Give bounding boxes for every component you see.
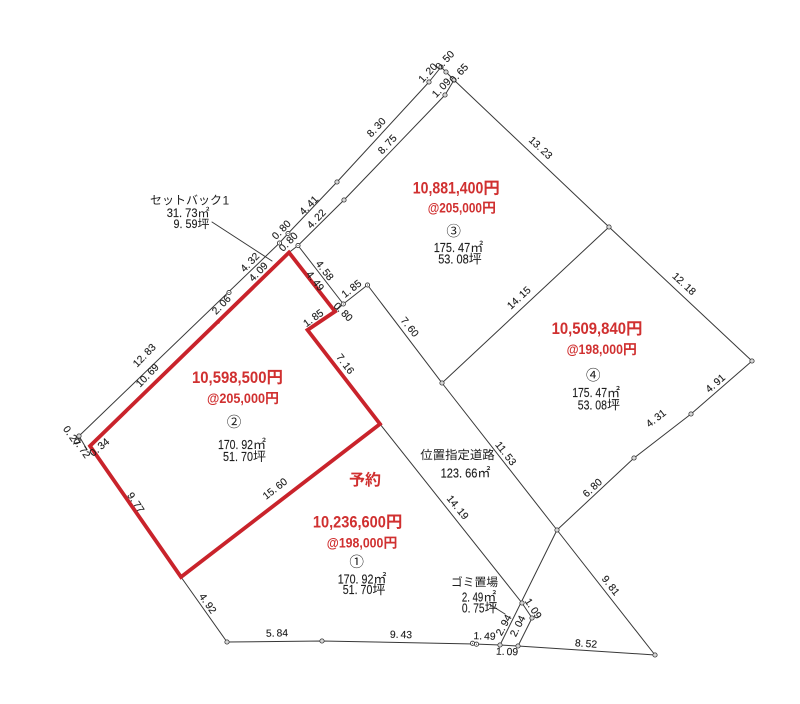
svg-text:53. 08: 53. 08 <box>578 397 607 412</box>
svg-text:0. 75: 0. 75 <box>462 600 485 615</box>
svg-text:51. 70: 51. 70 <box>343 582 373 597</box>
svg-text:1: 1 <box>223 193 230 207</box>
svg-text:5. 84: 5. 84 <box>266 628 289 639</box>
svg-text:1. 09: 1. 09 <box>496 647 519 659</box>
svg-text:9. 59: 9. 59 <box>174 217 198 231</box>
svg-text:@205,000: @205,000 <box>428 200 482 216</box>
svg-text:53. 08: 53. 08 <box>438 252 469 267</box>
svg-text:8. 52: 8. 52 <box>575 638 598 651</box>
svg-text:10,881,400: 10,881,400 <box>413 180 484 198</box>
svg-text:@198,000: @198,000 <box>567 341 623 357</box>
svg-text:10,598,500: 10,598,500 <box>192 369 267 387</box>
svg-text:10,509,840: 10,509,840 <box>552 320 626 338</box>
svg-text:123. 66: 123. 66 <box>441 465 478 480</box>
svg-text:@198,000: @198,000 <box>327 535 384 551</box>
svg-text:10,236,600: 10,236,600 <box>313 514 386 532</box>
svg-text:51. 70: 51. 70 <box>223 449 253 464</box>
svg-text:1. 49: 1. 49 <box>473 631 496 643</box>
svg-text:@205,000: @205,000 <box>207 390 265 406</box>
svg-text:9. 43: 9. 43 <box>390 630 413 641</box>
